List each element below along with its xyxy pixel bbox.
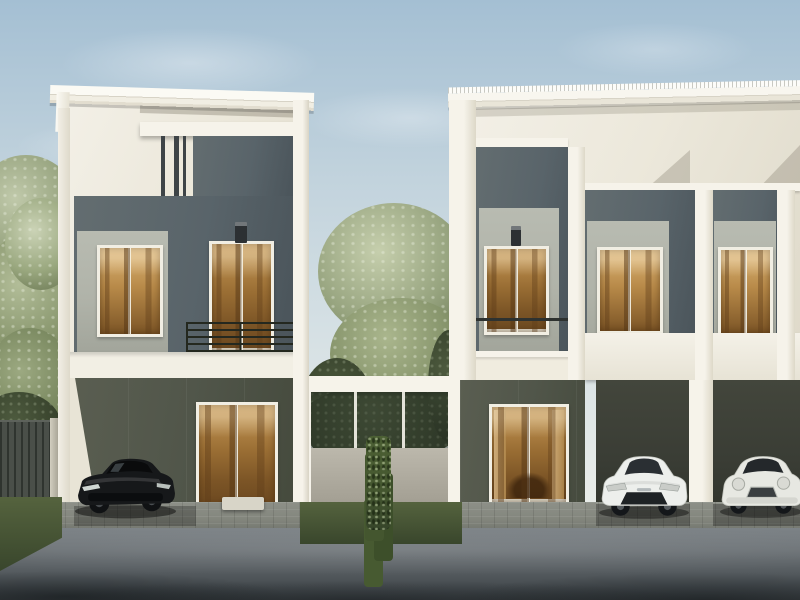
- corner-pilaster: [449, 100, 476, 380]
- left-canopy-beam: [140, 122, 303, 136]
- bay3-window: [718, 247, 773, 336]
- floor-slab: [62, 352, 303, 378]
- ivy-column: [366, 436, 391, 530]
- townhouse-rendering: [0, 0, 800, 600]
- corner-pillar: [58, 108, 70, 516]
- bay2-window: [597, 247, 663, 334]
- unit-pilaster: [777, 190, 795, 380]
- facade-fin: [183, 136, 186, 196]
- curtain: [552, 410, 564, 499]
- carport-pillar: [689, 380, 713, 513]
- wall-lamp: [235, 222, 247, 243]
- dining-set-silhouette: [506, 472, 552, 498]
- entry-step: [222, 497, 264, 510]
- facade-fin: [161, 136, 165, 196]
- corner-pillar: [293, 100, 309, 516]
- cloud: [555, 22, 755, 77]
- unit-pilaster: [695, 190, 713, 380]
- white-mini: [718, 436, 800, 522]
- balcony-glass-panels: [466, 321, 581, 352]
- curtain: [494, 410, 506, 499]
- facade-fin: [174, 136, 179, 196]
- gate-beam: [303, 376, 459, 392]
- livingroom-door: [489, 404, 569, 505]
- black-sedan: [72, 442, 180, 520]
- upper-window: [97, 245, 163, 337]
- balcony-railing: [186, 322, 295, 353]
- entry-glass-door: [196, 402, 278, 509]
- white-hatchback: [596, 441, 692, 521]
- wall-lamp: [511, 226, 521, 246]
- unit-pilaster: [568, 147, 585, 380]
- bay1-header: [462, 138, 568, 147]
- carport-fascia: [585, 333, 800, 380]
- left-upper-panel: [193, 136, 295, 197]
